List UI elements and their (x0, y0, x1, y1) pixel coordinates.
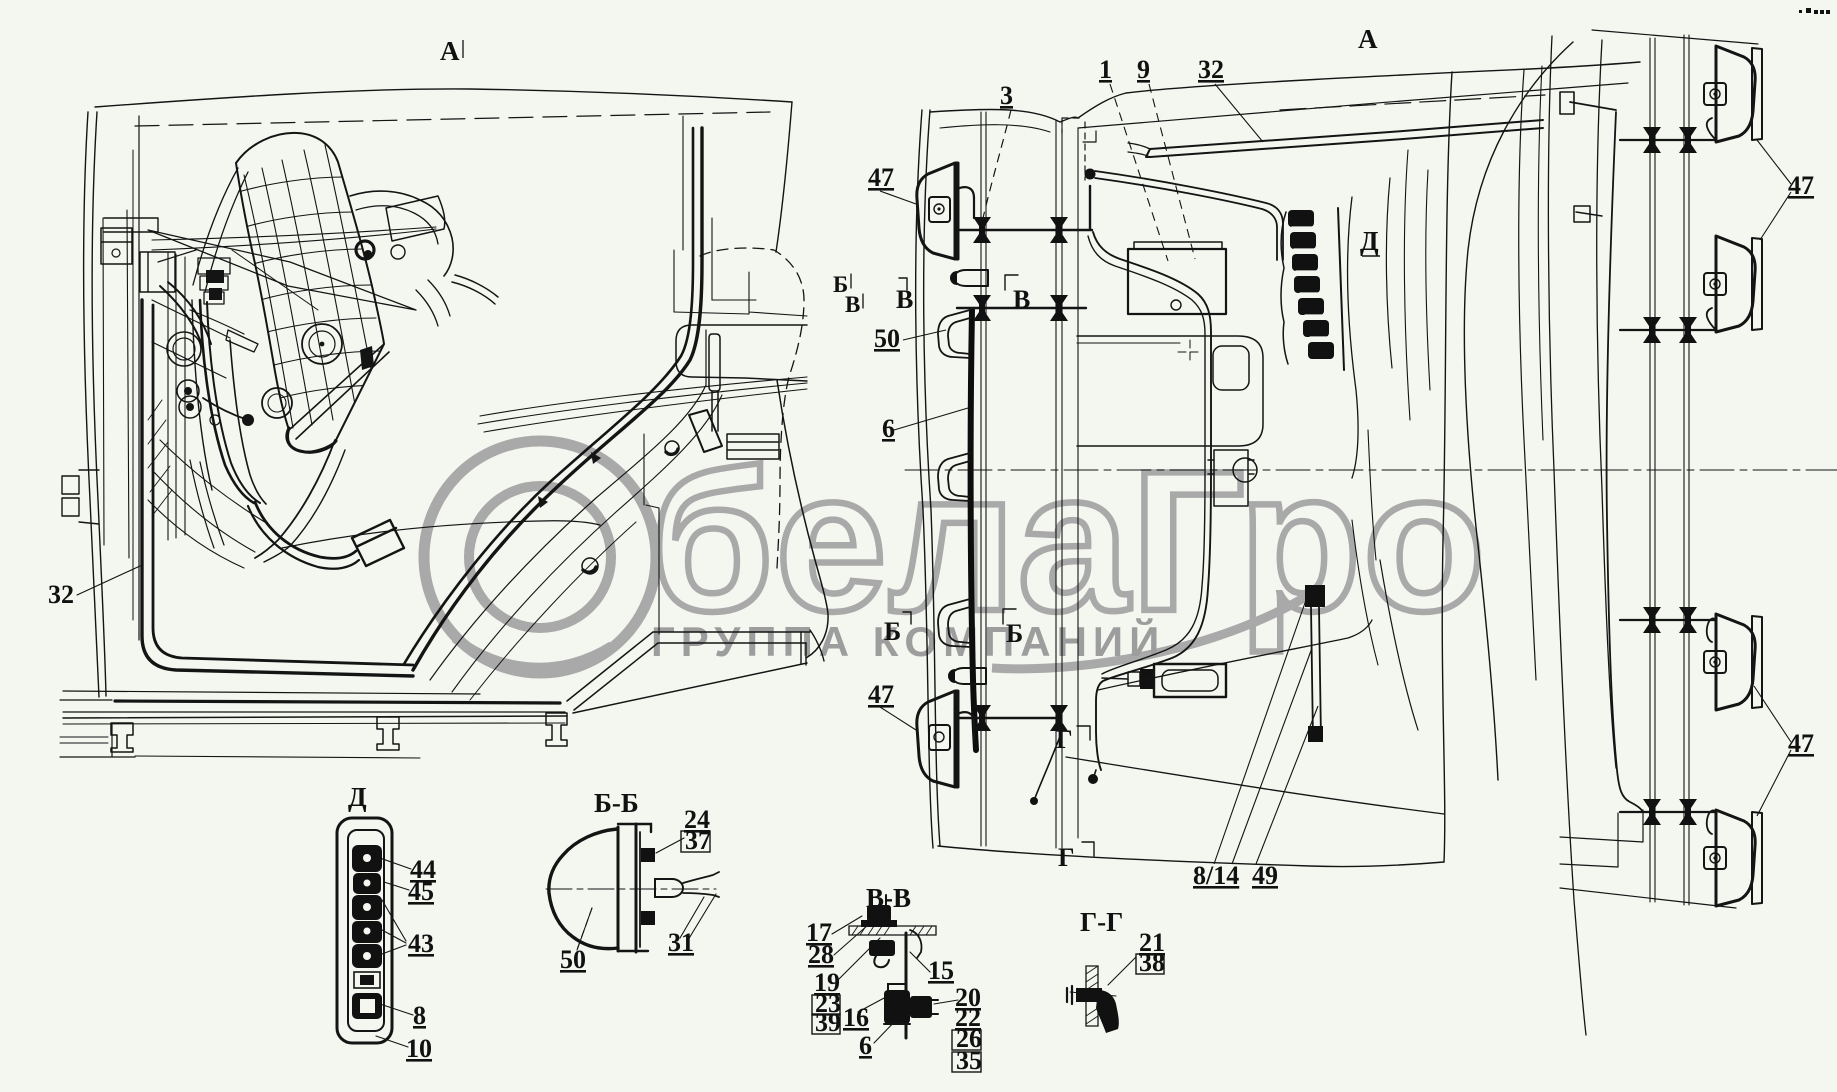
svg-text:В-В: В-В (866, 883, 911, 913)
svg-text:В: В (1013, 285, 1030, 314)
svg-text:50: 50 (874, 324, 900, 353)
svg-text:Д: Д (1360, 226, 1379, 256)
svg-text:В: В (845, 292, 860, 317)
svg-text:39: 39 (815, 1008, 841, 1037)
svg-text:Б-Б: Б-Б (594, 788, 639, 818)
svg-text:15: 15 (928, 956, 954, 985)
svg-text:Г: Г (1056, 725, 1073, 754)
svg-text:32: 32 (48, 580, 74, 609)
svg-text:6: 6 (882, 414, 895, 443)
svg-text:10: 10 (406, 1034, 432, 1063)
svg-text:47: 47 (868, 163, 894, 192)
svg-text:16: 16 (843, 1003, 869, 1032)
svg-text:31: 31 (668, 928, 694, 957)
svg-text:Д: Д (348, 782, 367, 812)
svg-text:49: 49 (1252, 861, 1278, 890)
svg-text:47: 47 (868, 680, 894, 709)
svg-text:8: 8 (413, 1001, 426, 1030)
svg-text:Г-Г: Г-Г (1080, 907, 1123, 937)
svg-text:Б: Б (1006, 619, 1023, 648)
svg-text:А: А (440, 36, 460, 66)
svg-text:38: 38 (1139, 948, 1165, 977)
svg-text:37: 37 (685, 826, 711, 855)
svg-text:1: 1 (1099, 55, 1112, 84)
svg-text:47: 47 (1788, 729, 1814, 758)
svg-text:А: А (1358, 24, 1378, 54)
svg-text:Б: Б (884, 617, 901, 646)
svg-text:В: В (896, 285, 913, 314)
svg-text:45: 45 (408, 877, 434, 906)
svg-text:6: 6 (859, 1031, 872, 1060)
svg-text:3: 3 (1000, 81, 1013, 110)
svg-text:ГРУППА КОМПАНИЙ: ГРУППА КОМПАНИЙ (651, 617, 1165, 665)
svg-text:9: 9 (1137, 55, 1150, 84)
svg-text:43: 43 (408, 929, 434, 958)
svg-text:32: 32 (1198, 55, 1224, 84)
svg-text:Г: Г (1058, 843, 1075, 872)
svg-text:50: 50 (560, 945, 586, 974)
svg-text:28: 28 (808, 940, 834, 969)
svg-text:8/14: 8/14 (1193, 861, 1239, 890)
svg-text:47: 47 (1788, 171, 1814, 200)
svg-text:35: 35 (956, 1046, 982, 1075)
